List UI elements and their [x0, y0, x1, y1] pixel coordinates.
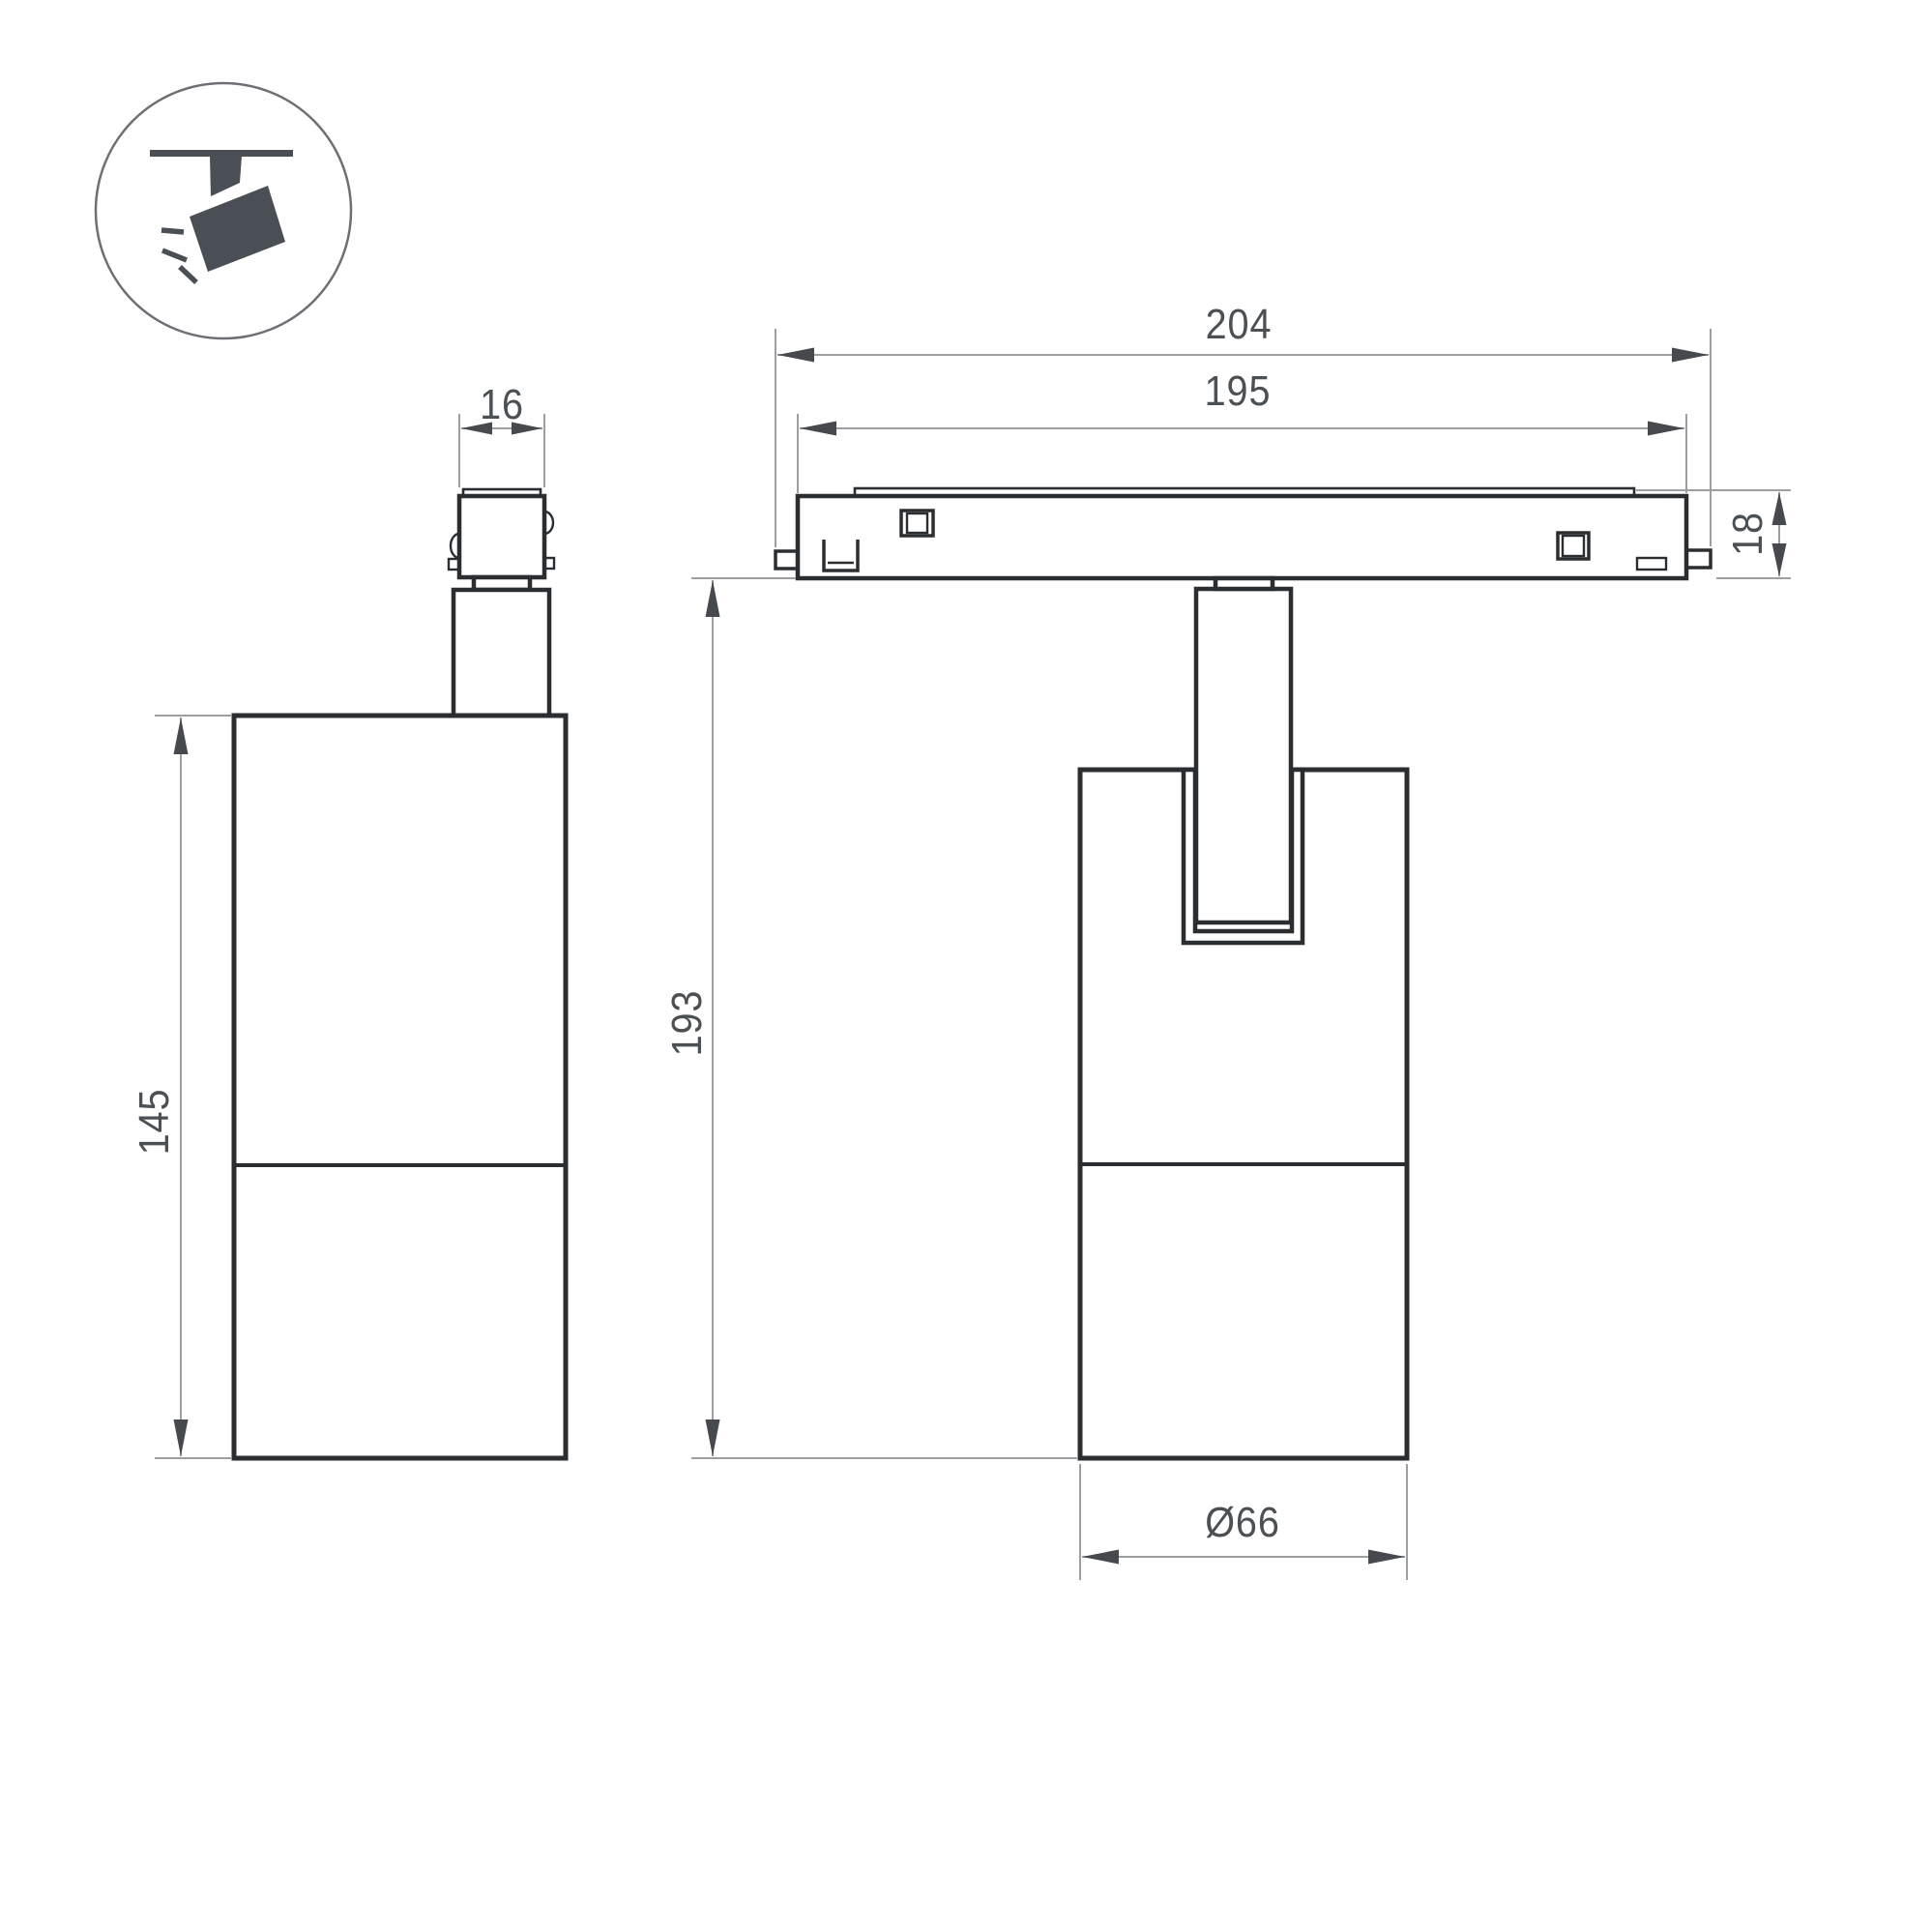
side-lamp-body: [234, 716, 566, 1458]
front-neck: [1215, 578, 1273, 589]
dim-label-body-diameter: Ø66: [1205, 1498, 1280, 1545]
dim-label-track-height: 18: [1723, 512, 1771, 556]
dimension-overall-height: 193: [662, 578, 1078, 1458]
product-icon: [96, 83, 351, 338]
side-stem: [454, 590, 549, 716]
front-view: [776, 488, 1711, 1458]
dim-label-overall-height: 193: [662, 990, 710, 1057]
side-view: [234, 489, 566, 1458]
side-track-adapter: [459, 496, 544, 577]
front-stem: [1196, 589, 1291, 922]
front-track-tab-left: [776, 551, 798, 569]
dim-arrow-up: [174, 717, 189, 754]
front-track-tab-right: [1686, 550, 1711, 568]
dim-arrow-right: [1672, 348, 1709, 363]
dim-arrow-left: [777, 348, 814, 363]
dimension-track-inner-width: 195: [798, 366, 1686, 493]
drawing-svg: 16 204 195 18: [0, 0, 1932, 1932]
dim-label-side-body-height: 145: [130, 1089, 177, 1156]
dim-arrow-down: [706, 1420, 720, 1456]
dim-arrow-right: [1648, 422, 1684, 436]
dim-arrow-left: [800, 422, 836, 436]
dim-arrow-down: [1772, 543, 1787, 576]
dim-label-track-overall-width: 204: [1206, 300, 1273, 347]
dim-label-track-inner-width: 195: [1205, 366, 1272, 414]
dim-arrow-up: [1772, 492, 1787, 525]
technical-drawing-canvas: 16 204 195 18: [0, 0, 1932, 1932]
icon-light-ray: [161, 230, 184, 232]
dim-arrow-down: [174, 1420, 189, 1456]
dim-label-connector-width: 16: [480, 380, 524, 427]
dimension-body-diameter: Ø66: [1080, 1464, 1407, 1580]
dimension-connector-width: 16: [459, 380, 544, 487]
dim-arrow-left: [1082, 1550, 1119, 1565]
dimension-side-body-height: 145: [130, 716, 232, 1458]
icon-ceiling-bar: [150, 150, 293, 157]
dim-arrow-up: [706, 580, 720, 617]
dim-arrow-right: [1368, 1550, 1405, 1565]
